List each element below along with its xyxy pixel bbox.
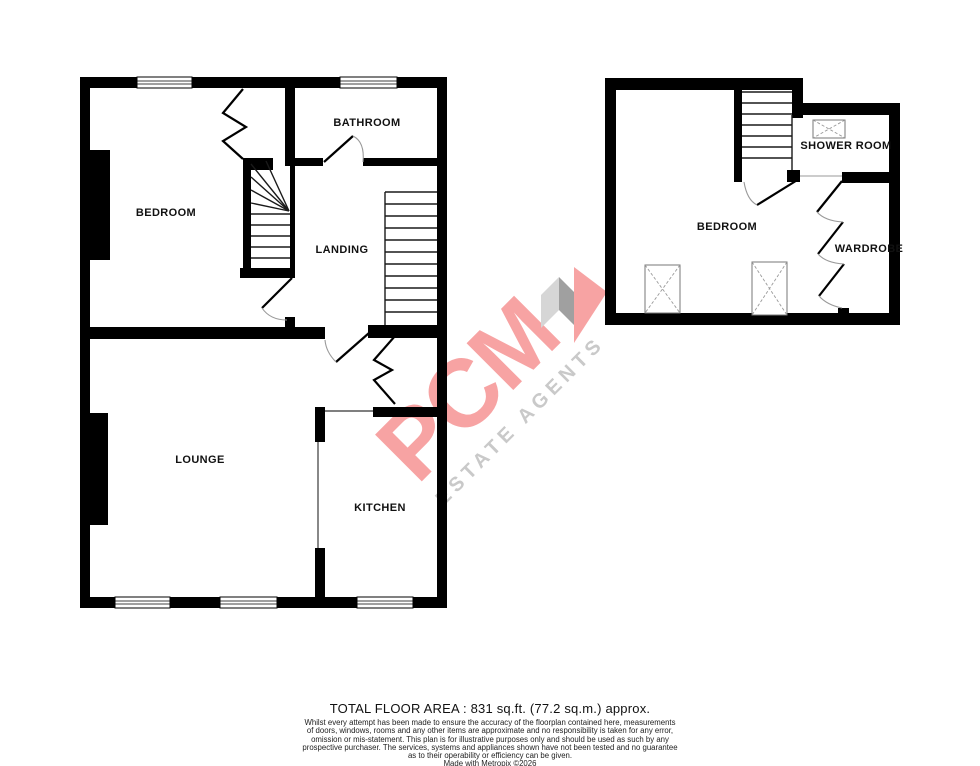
total-floor-area-text: TOTAL FLOOR AREA : 831 sq.ft. (77.2 sq.m…: [0, 701, 980, 716]
room-label-bathroom: BATHROOM: [333, 117, 400, 129]
stairs: [251, 92, 792, 325]
floorplan-graphics: [0, 0, 980, 766]
room-label-bedroom-second: BEDROOM: [697, 221, 757, 233]
footer: TOTAL FLOOR AREA : 831 sq.ft. (77.2 sq.m…: [0, 701, 980, 766]
floorplan-page: PCM ESTATE AGENTS: [0, 0, 980, 766]
room-label-landing: LANDING: [316, 244, 369, 256]
windows: [115, 77, 413, 608]
room-label-lounge: LOUNGE: [175, 454, 224, 466]
room-label-wardrobe: WARDROBE: [835, 243, 904, 255]
room-label-shower-room: SHOWER ROOM: [800, 140, 891, 152]
room-label-bedroom-first: BEDROOM: [136, 207, 196, 219]
room-label-kitchen: KITCHEN: [354, 502, 406, 514]
kitchen-divider: [318, 176, 842, 548]
disclaimer-text: Whilst every attempt has been made to en…: [0, 719, 980, 760]
metropix-credit-text: Made with Metropix ©2026: [0, 760, 980, 766]
